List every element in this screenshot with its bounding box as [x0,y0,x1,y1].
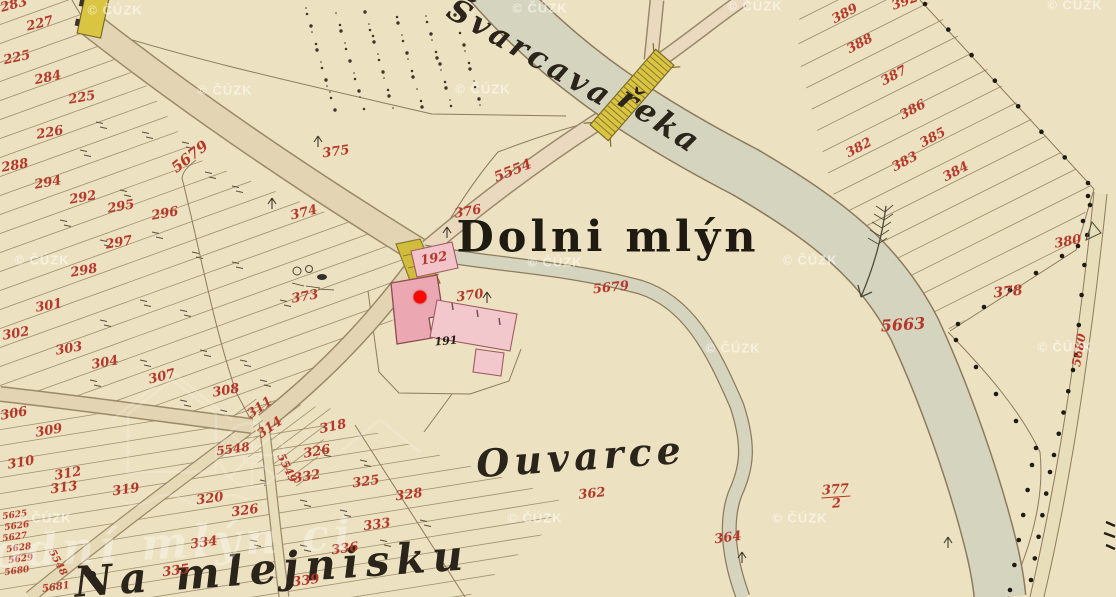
map-artwork [0,0,1116,597]
location-marker [414,291,427,304]
map-canvas[interactable]: ŠvarcavařekaDolni mlýnOuvarceNa mlejnisk… [0,0,1116,597]
